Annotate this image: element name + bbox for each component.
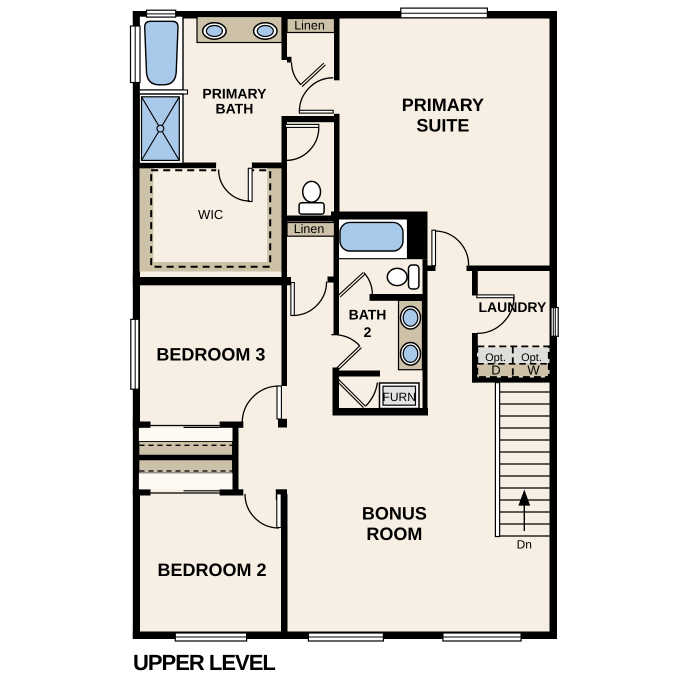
svg-text:FURN: FURN xyxy=(383,390,416,404)
svg-text:BEDROOM 3: BEDROOM 3 xyxy=(156,345,265,365)
svg-text:BATH: BATH xyxy=(349,306,387,322)
svg-text:W: W xyxy=(527,363,540,378)
svg-text:PRIMARY: PRIMARY xyxy=(402,95,484,115)
svg-text:PRIMARY: PRIMARY xyxy=(202,85,267,101)
svg-text:SUITE: SUITE xyxy=(416,116,469,136)
svg-text:BATH: BATH xyxy=(215,101,253,117)
svg-text:LAUNDRY: LAUNDRY xyxy=(478,299,547,315)
svg-text:BONUS: BONUS xyxy=(362,504,427,524)
svg-text:Dn: Dn xyxy=(517,538,532,552)
svg-text:Linen: Linen xyxy=(294,222,325,236)
svg-text:BEDROOM 2: BEDROOM 2 xyxy=(157,560,266,580)
svg-text:D: D xyxy=(491,363,500,378)
svg-text:2: 2 xyxy=(364,324,372,340)
svg-text:WIC: WIC xyxy=(198,207,223,222)
svg-text:Linen: Linen xyxy=(294,19,325,33)
svg-text:UPPER LEVEL: UPPER LEVEL xyxy=(133,650,275,675)
svg-text:ROOM: ROOM xyxy=(366,524,422,544)
